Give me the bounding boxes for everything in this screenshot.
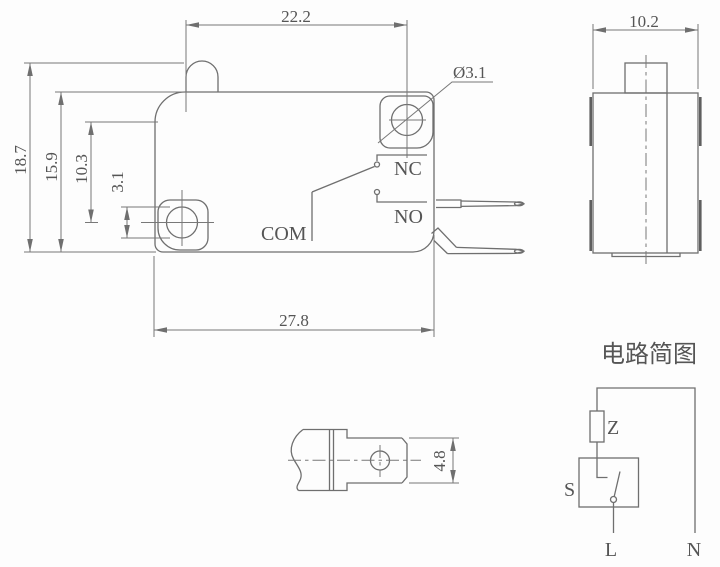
nc-contact-point [375,162,380,167]
live-label: L [605,539,617,561]
impedance-label: Z [607,417,619,439]
nc-label: NC [394,158,422,180]
circuit-wire-to-switch [597,442,608,478]
plunger [186,61,218,92]
switch-lever [614,472,620,497]
switch-pivot [611,497,617,503]
dim-height-body-text: 15.9 [42,152,61,182]
circuit-title: 电路简图 [601,341,697,368]
com-label: COM [261,223,307,245]
technical-drawing: NC NO COM 22.2 18.7 [0,0,720,567]
drawing-canvas: NC NO COM 22.2 18.7 [0,0,720,567]
terminal-detail-view: 4.8 [288,430,459,491]
diameter-callout-text: Ø3.1 [453,63,487,82]
dim-hole-offset-text: 10.3 [72,154,91,184]
no-contact [377,195,427,203]
terminal-blade-bottom [432,228,525,254]
internal-contacts: NC NO COM [261,155,427,245]
dim-height-overall-text: 18.7 [11,145,30,175]
side-view: 10.2 [591,12,701,265]
terminal-blade-top [436,200,525,209]
circuit-diagram: 电路简图 Z S L N [564,341,701,561]
movable-arm [312,167,375,193]
switch-label: S [564,479,575,501]
circuit-wire-main [597,388,695,533]
dim-side-width-text: 10.2 [629,12,659,31]
no-contact-point [375,190,380,195]
dim-width-top-text: 22.2 [281,7,311,26]
impedance-symbol [590,411,604,442]
dim-width-bottom-text: 27.8 [279,311,309,330]
neutral-label: N [687,539,701,561]
dim-terminal-width-text: 4.8 [430,450,449,471]
dim-width-top: 22.2 [186,7,407,112]
switch-box [579,458,639,507]
front-view: NC NO COM 22.2 18.7 [11,7,525,337]
dim-side-width: 10.2 [593,12,698,89]
no-label: NO [394,206,423,228]
dim-hole-diameter-text: 3.1 [108,171,127,192]
